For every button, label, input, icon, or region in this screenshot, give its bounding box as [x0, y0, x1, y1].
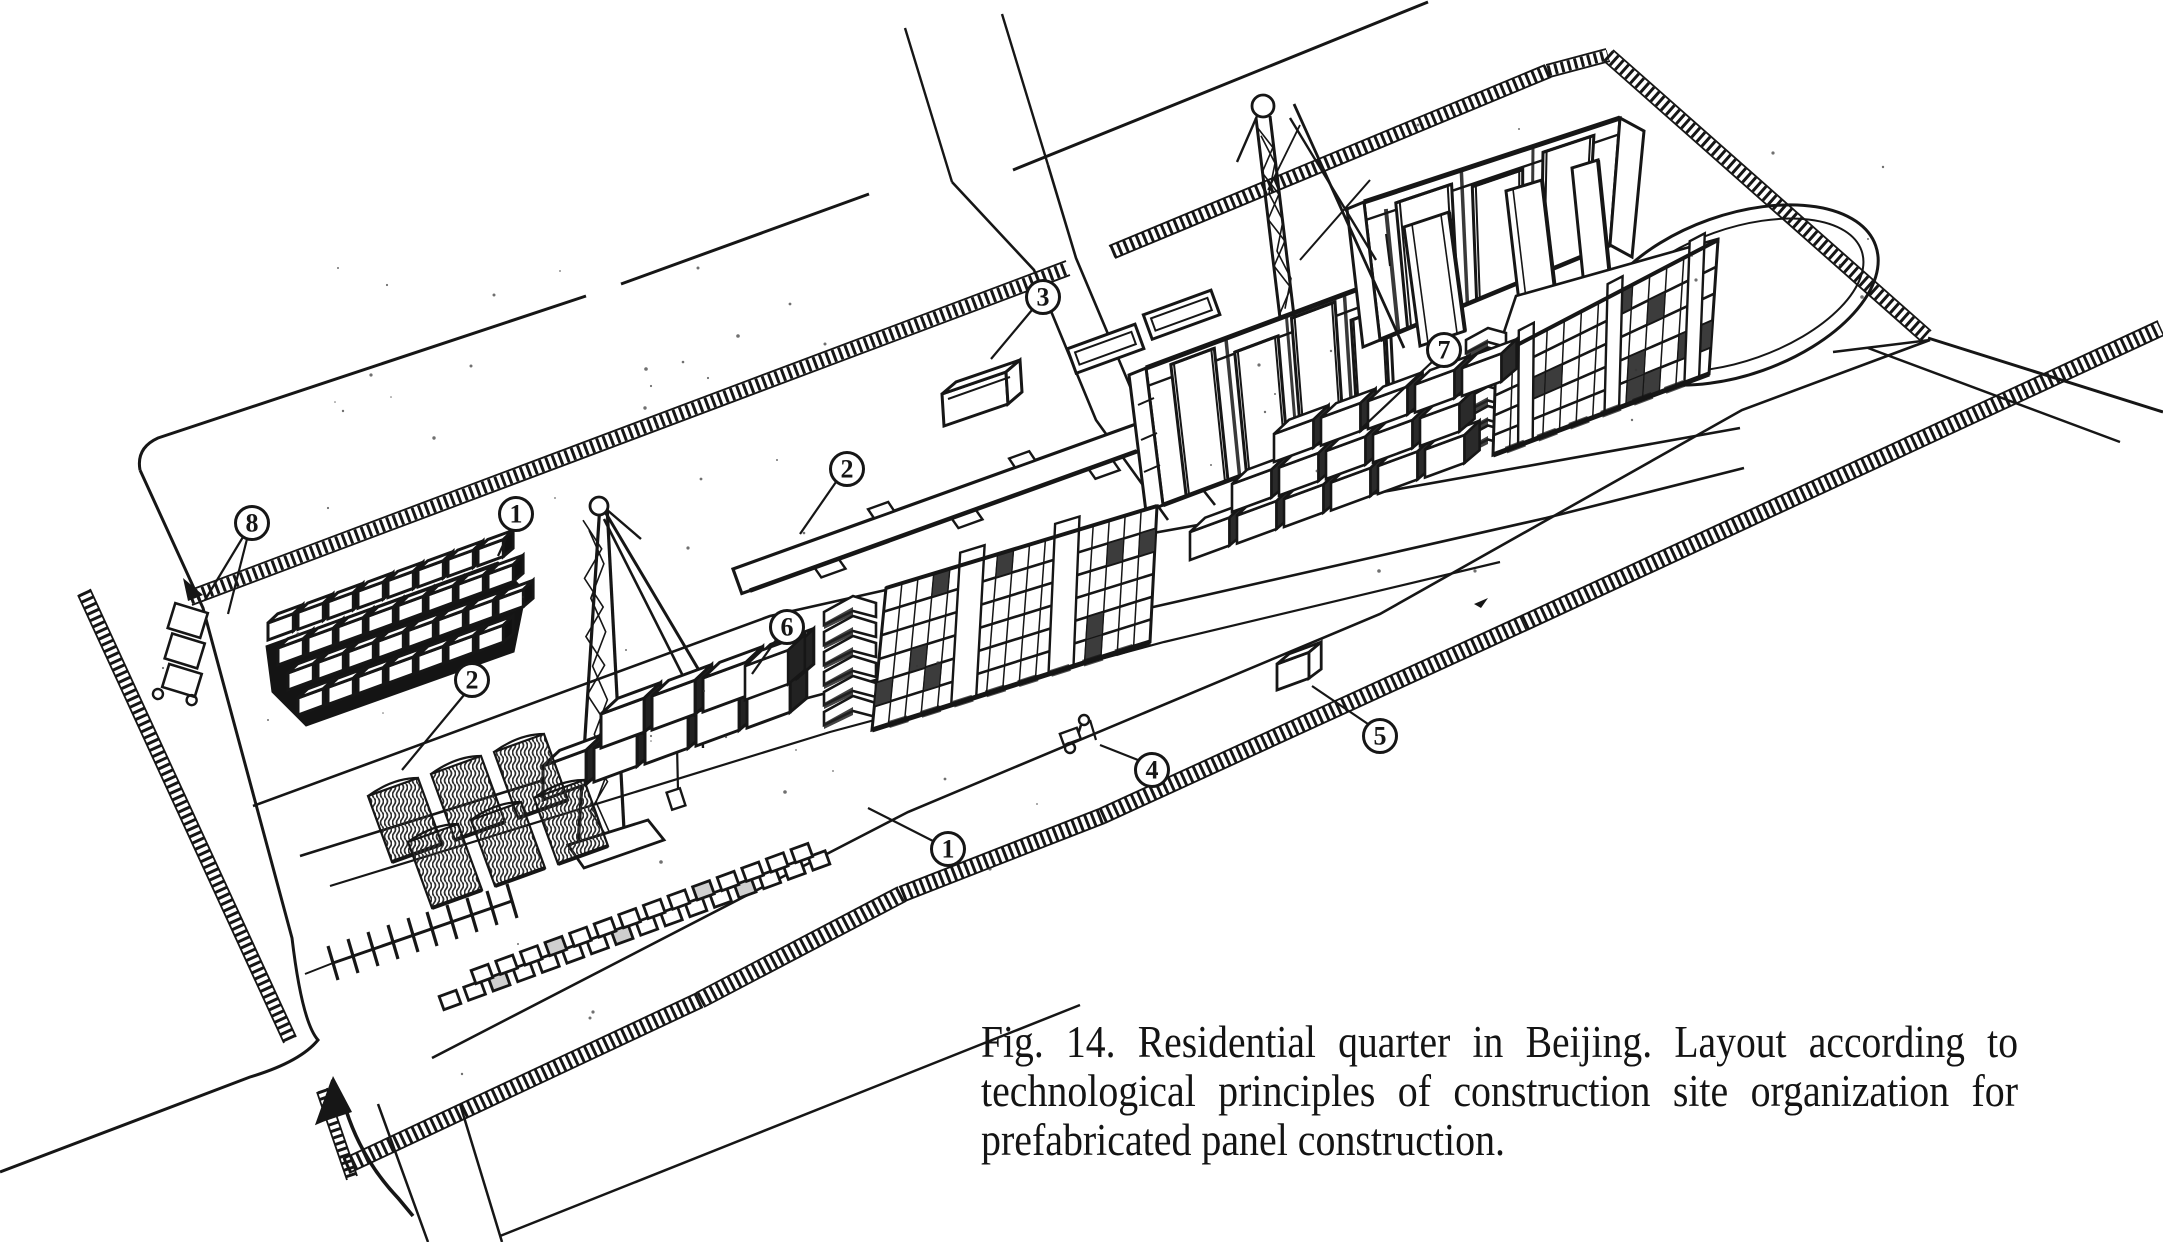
- svg-text:technological principles of co: technological principles of construction…: [981, 1066, 2018, 1116]
- svg-text:prefabricated panel constructi: prefabricated panel construction.: [981, 1115, 1505, 1165]
- svg-text:6: 6: [781, 613, 794, 642]
- svg-text:1: 1: [942, 835, 955, 864]
- svg-text:8: 8: [246, 509, 259, 538]
- svg-text:1: 1: [510, 500, 523, 529]
- svg-text:Fig. 14. Residential quarter i: Fig. 14. Residential quarter in Beijing.…: [981, 1017, 2018, 1067]
- svg-text:2: 2: [841, 455, 854, 484]
- svg-text:7: 7: [1438, 336, 1451, 365]
- svg-text:2: 2: [466, 666, 479, 695]
- svg-text:4: 4: [1146, 756, 1159, 785]
- svg-text:3: 3: [1037, 283, 1050, 312]
- svg-text:5: 5: [1374, 722, 1387, 751]
